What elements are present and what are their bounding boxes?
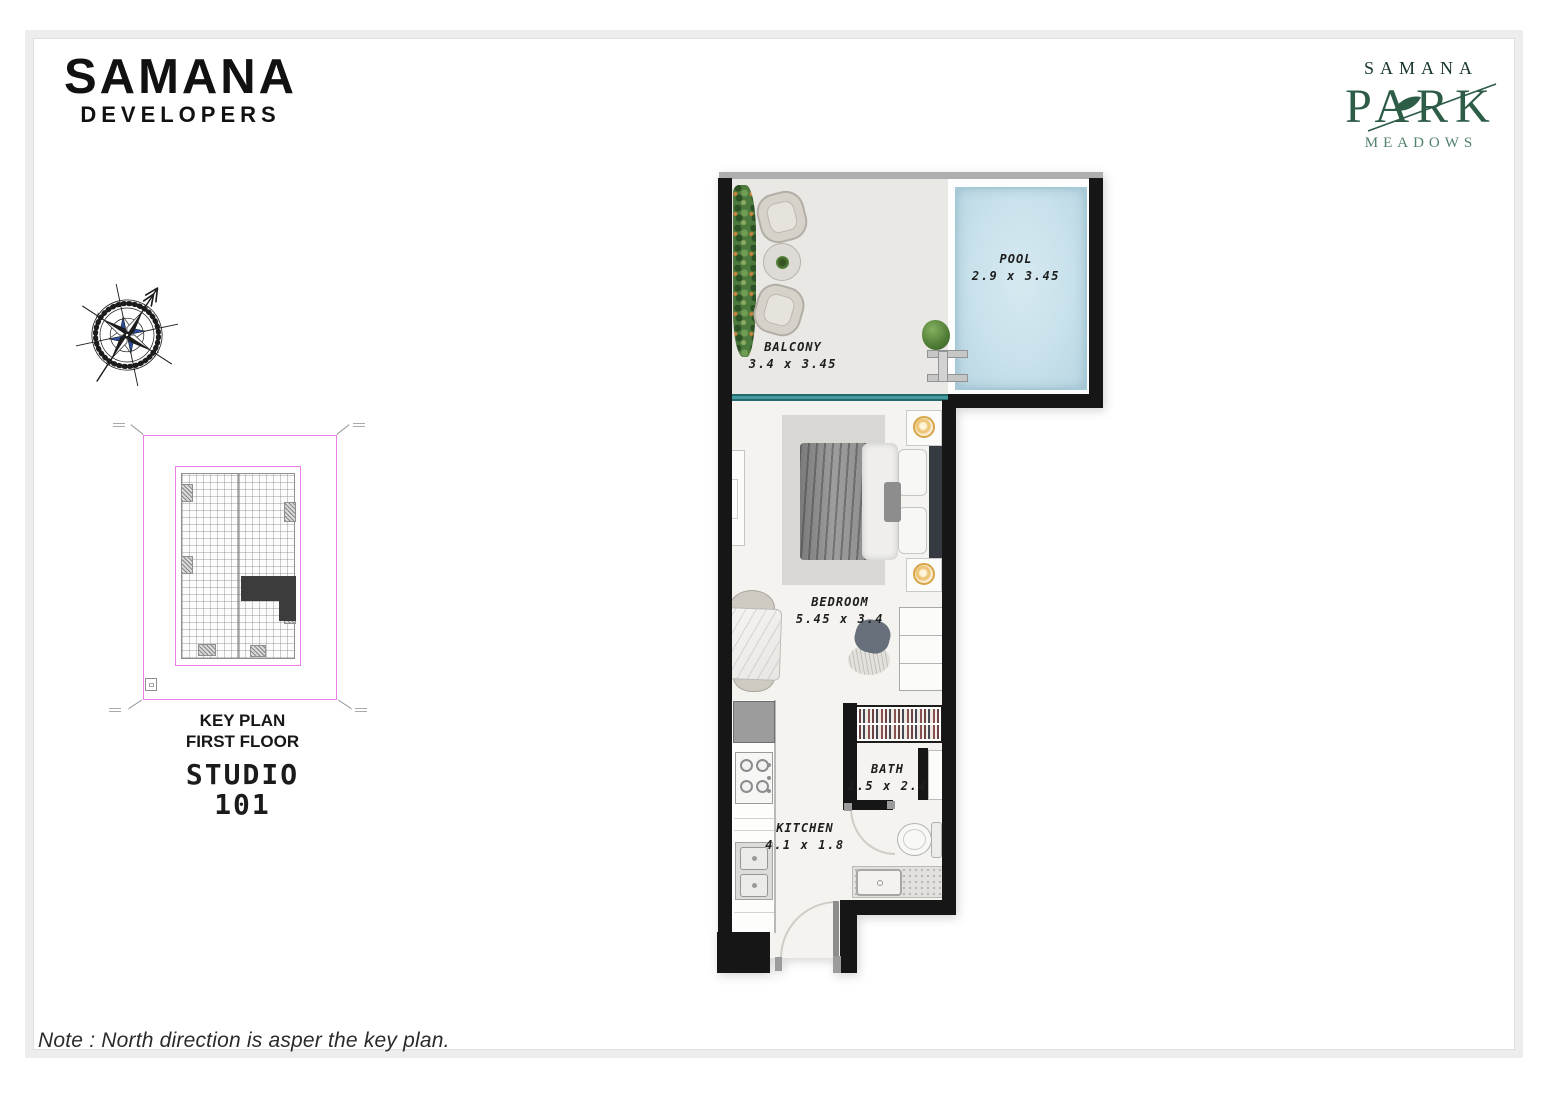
key-plan-floor: FIRST FLOOR bbox=[140, 731, 345, 752]
door-jamb bbox=[833, 956, 841, 973]
kitchen-dimensions: 4.1 x 1.8 bbox=[740, 838, 870, 852]
key-plan bbox=[143, 435, 337, 700]
bedroom-name: BEDROOM bbox=[775, 595, 905, 609]
project-logo-subtitle: MEADOWS bbox=[1338, 135, 1504, 152]
unit-caption: STUDIO 101 bbox=[140, 760, 345, 820]
table-lamp bbox=[913, 416, 935, 438]
bedroom-label: BEDROOM 5.45 x 3.4 bbox=[775, 595, 905, 626]
toilet bbox=[897, 820, 942, 860]
key-plan-caption: KEY PLAN FIRST FLOOR bbox=[140, 710, 345, 752]
wall bbox=[718, 178, 732, 973]
bush-plant bbox=[922, 320, 950, 350]
sink-basin bbox=[740, 874, 768, 897]
hanging-clothes bbox=[859, 709, 939, 723]
pool-ladder-bar bbox=[938, 351, 948, 382]
balcony-sliding-door bbox=[732, 394, 948, 401]
project-logo-name: PARK bbox=[1338, 81, 1504, 133]
key-plan-title: KEY PLAN bbox=[140, 710, 345, 731]
keyplan-hatch-block bbox=[250, 645, 266, 657]
bed-pillow bbox=[898, 507, 927, 554]
table-lamp bbox=[913, 563, 935, 585]
refrigerator bbox=[733, 701, 775, 743]
balcony-side-table bbox=[763, 243, 801, 281]
keyplan-legend-box bbox=[145, 678, 157, 691]
pool-water bbox=[955, 187, 1087, 390]
planter-hedge bbox=[733, 185, 756, 357]
keyplan-corner-tag bbox=[353, 422, 365, 427]
keyplan-hatch-block bbox=[181, 556, 193, 574]
toilet-bowl bbox=[897, 823, 932, 856]
bedroom-window bbox=[899, 607, 943, 691]
developer-logo: SAMANA DEVELOPERS bbox=[64, 52, 297, 127]
developer-logo-subtitle: DEVELOPERS bbox=[64, 103, 297, 127]
nightstand bbox=[906, 558, 942, 592]
bath-sink bbox=[856, 869, 902, 896]
unit-type: STUDIO bbox=[140, 760, 345, 790]
wardrobe bbox=[855, 705, 943, 743]
pool-name: POOL bbox=[951, 252, 1081, 266]
balcony-label: BALCONY 3.4 x 3.45 bbox=[728, 340, 858, 371]
bed-headboard bbox=[929, 443, 942, 560]
pool-dimensions: 2.9 x 3.45 bbox=[951, 269, 1081, 283]
pool-label: POOL 2.9 x 3.45 bbox=[951, 252, 1081, 283]
balcony-dimensions: 3.4 x 3.45 bbox=[728, 357, 858, 371]
parapet-rail bbox=[719, 172, 1103, 179]
wall bbox=[840, 900, 857, 973]
highlighted-unit-extension bbox=[279, 589, 296, 621]
unit-number: 101 bbox=[140, 790, 345, 820]
keyplan-hatch-block bbox=[181, 484, 193, 502]
stove-knob bbox=[767, 763, 771, 767]
developer-logo-title: SAMANA bbox=[64, 52, 297, 102]
wall bbox=[717, 932, 770, 973]
nightstand bbox=[906, 410, 942, 446]
hanging-clothes bbox=[859, 725, 939, 739]
stove-burner bbox=[740, 759, 753, 772]
bedroom-dimensions: 5.45 x 3.4 bbox=[775, 612, 905, 626]
kitchen-name: KITCHEN bbox=[740, 821, 870, 835]
wall bbox=[1089, 178, 1103, 408]
project-logo-brand: SAMANA bbox=[1338, 58, 1504, 79]
wall bbox=[948, 394, 1103, 408]
stove-knob bbox=[767, 789, 771, 793]
project-logo: SAMANA PARK MEADOWS bbox=[1338, 58, 1504, 152]
balcony-name: BALCONY bbox=[728, 340, 858, 354]
door-jamb bbox=[844, 803, 852, 811]
bed bbox=[800, 443, 942, 560]
key-plan-building-drawing bbox=[181, 473, 295, 659]
stove-burner bbox=[740, 780, 753, 793]
footer-note: Note : North direction is asper the key … bbox=[38, 1029, 450, 1053]
keyplan-corner-tag bbox=[113, 422, 125, 427]
wall bbox=[942, 400, 956, 915]
toilet-tank bbox=[931, 822, 942, 858]
bath-name: BATH bbox=[825, 762, 950, 776]
bed-cushion bbox=[884, 482, 901, 522]
stove bbox=[735, 752, 773, 804]
door-jamb bbox=[887, 801, 895, 809]
bath-vanity bbox=[852, 866, 943, 898]
compass-rose-icon: N E S W bbox=[66, 274, 188, 396]
floor-plan: POOL 2.9 x 3.45 BALCONY 3.4 x 3.45 BEDRO… bbox=[715, 170, 1111, 982]
entry-door-leaf bbox=[833, 901, 839, 958]
bath-dimensions: 1.5 x 2.4 bbox=[825, 779, 950, 793]
bath-label: BATH 1.5 x 2.4 bbox=[825, 762, 950, 793]
keyplan-hatch-block bbox=[198, 644, 216, 656]
bed-pillow bbox=[898, 449, 927, 496]
door-jamb bbox=[775, 957, 782, 971]
document-canvas: SAMANA DEVELOPERS SAMANA PARK MEADOWS bbox=[0, 0, 1556, 1100]
potted-plant bbox=[776, 256, 789, 269]
stove-knob bbox=[767, 776, 771, 780]
keyplan-hatch-block bbox=[284, 502, 296, 522]
kitchen-counter bbox=[732, 700, 776, 933]
keyplan-corner-tag bbox=[109, 707, 121, 712]
project-logo-name-wrap: PARK bbox=[1338, 81, 1504, 135]
kitchen-label: KITCHEN 4.1 x 1.8 bbox=[740, 821, 870, 852]
keyplan-corner-tag bbox=[355, 707, 367, 712]
wall bbox=[852, 900, 956, 915]
